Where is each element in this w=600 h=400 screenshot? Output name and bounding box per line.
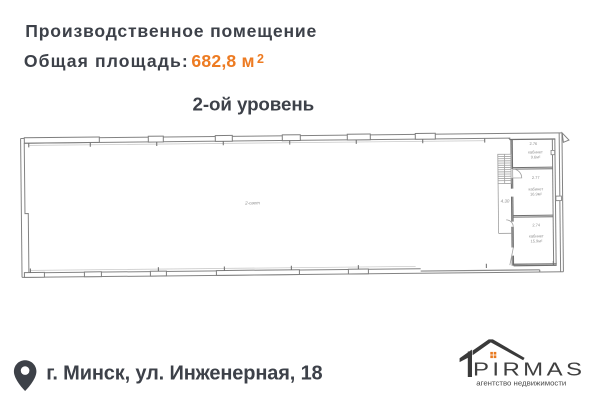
svg-text:9.6м²: 9.6м² <box>531 154 541 159</box>
svg-text:2-ой уровень: 2-ой уровень <box>193 94 315 115</box>
svg-text:15.9м²: 15.9м² <box>530 238 543 243</box>
svg-text:16.9м²: 16.9м² <box>530 191 543 196</box>
svg-text:682,8 м: 682,8 м <box>191 51 254 71</box>
svg-text:Общая площадь:: Общая площадь: <box>24 51 189 71</box>
svg-text:4.30: 4.30 <box>501 199 510 204</box>
svg-text:2: 2 <box>257 52 264 66</box>
svg-text:г. Минск, ул. Инженерная, 18: г. Минск, ул. Инженерная, 18 <box>46 363 322 385</box>
svg-text:2-свет: 2-свет <box>244 200 260 205</box>
svg-text:2.74: 2.74 <box>532 222 541 227</box>
svg-text:PIRMAS: PIRMAS <box>473 359 585 380</box>
svg-text:2.77: 2.77 <box>532 175 541 180</box>
svg-text:агентство недвижимости: агентство недвижимости <box>476 379 566 388</box>
svg-text:2.76: 2.76 <box>529 141 538 146</box>
svg-text:Производственное помещение: Производственное помещение <box>25 21 317 41</box>
